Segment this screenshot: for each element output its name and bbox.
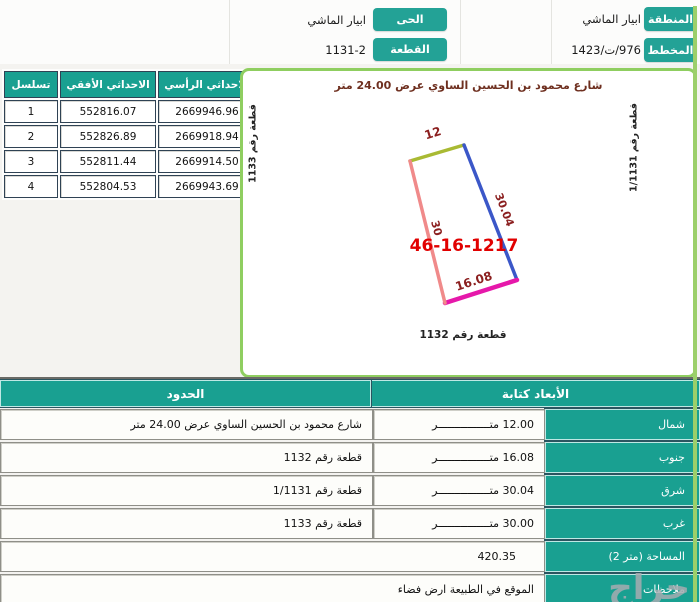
dim-east: 30.04 متــــــــــــــــر [373,475,545,506]
table-row-south: جنوب 16.08 متــــــــــــــــر قطعة رقم … [0,442,700,473]
table-row-west: غرب 30.00 متــــــــــــــــر قطعة رقم 1… [0,508,700,539]
dim-south: 16.08 متــــــــــــــــر [373,442,545,473]
cell-serial: 3 [4,150,58,173]
cell-x: 552826.89 [60,125,156,148]
notes-value: الموقع في الطبيعة ارض فضاء [0,574,545,602]
parcel-document: المنطقة ابيار الماشي المخطط 976/ت/1423 ا… [0,0,700,602]
haraj-watermark: حراج [608,568,690,602]
plot-sketch-panel: شارع محمود بن الحسين الساوي عرض 24.00 مت… [240,68,697,378]
coords-header-row: الاحداثي الرأسي الاحداثي الأفقي تسلسل [4,71,256,98]
col-header-serial: تسلسل [4,71,58,98]
header-dimensions: الأبعاد كتابة [371,380,700,407]
table-row: 2669918.94 552826.89 2 [4,125,256,148]
header-bounds: الحدود [0,380,371,407]
table-row: 2669946.96 552816.07 1 [4,100,256,123]
district-value: ابيار الماشي [268,8,366,31]
row-label-east: شرق [545,475,700,506]
table-row-area: المساحة (متر 2) 420.35 [0,541,700,572]
district-tag[interactable]: الحى [373,8,447,31]
bounds-header-row: الأبعاد كتابة الحدود [0,380,700,407]
dim-north-label: 12 [423,124,443,142]
row-label-south: جنوب [545,442,700,473]
table-row-notes: ملاحظات الموقع في الطبيعة ارض فضاء [0,574,700,602]
table-row: 2669914.50 552811.44 3 [4,150,256,173]
bound-north: شارع محمود بن الحسين الساوي عرض 24.00 مت… [0,409,373,440]
divider [460,0,461,64]
parcel-value: 1131-2 [268,38,366,61]
cell-serial: 4 [4,175,58,198]
row-label-north: شمال [545,409,700,440]
divider [229,0,230,64]
parcel-polygon: 12 30.04 30 16.08 46-16-1217 [243,71,694,375]
bound-west: قطعة رقم 1133 [0,508,373,539]
plan-value: 976/ت/1423 [545,38,641,62]
col-header-horizontal: الاحداثي الأفقي [60,71,156,98]
bound-east: قطعة رقم 1/1131 [0,475,373,506]
table-row-north: شمال 12.00 متــــــــــــــــر شارع محمو… [0,409,700,440]
divider [0,377,700,379]
table-row-east: شرق 30.04 متــــــــــــــــر قطعة رقم 1… [0,475,700,506]
dim-north: 12.00 متــــــــــــــــر [373,409,545,440]
dim-west: 30.00 متــــــــــــــــر [373,508,545,539]
cell-x: 552804.53 [60,175,156,198]
edge-north [410,145,464,161]
right-green-border [693,6,697,602]
table-row: 2669943.69 552804.53 4 [4,175,256,198]
row-label-west: غرب [545,508,700,539]
region-value: ابيار الماشي [545,7,641,31]
cell-serial: 1 [4,100,58,123]
plan-tag[interactable]: المخطط [644,38,697,62]
cell-x: 552811.44 [60,150,156,173]
area-value: 420.35 [0,541,545,572]
parcel-tag[interactable]: القطعة [373,38,447,61]
region-tag[interactable]: المنطقة [644,7,697,31]
cell-x: 552816.07 [60,100,156,123]
cell-serial: 2 [4,125,58,148]
bound-south: قطعة رقم 1132 [0,442,373,473]
parcel-number: 46-16-1217 [410,236,519,256]
boundaries-table: الأبعاد كتابة الحدود شمال 12.00 متــــــ… [0,380,700,602]
coordinates-table: الاحداثي الرأسي الاحداثي الأفقي تسلسل 26… [2,69,258,200]
dim-west-label: 30 [428,219,445,237]
